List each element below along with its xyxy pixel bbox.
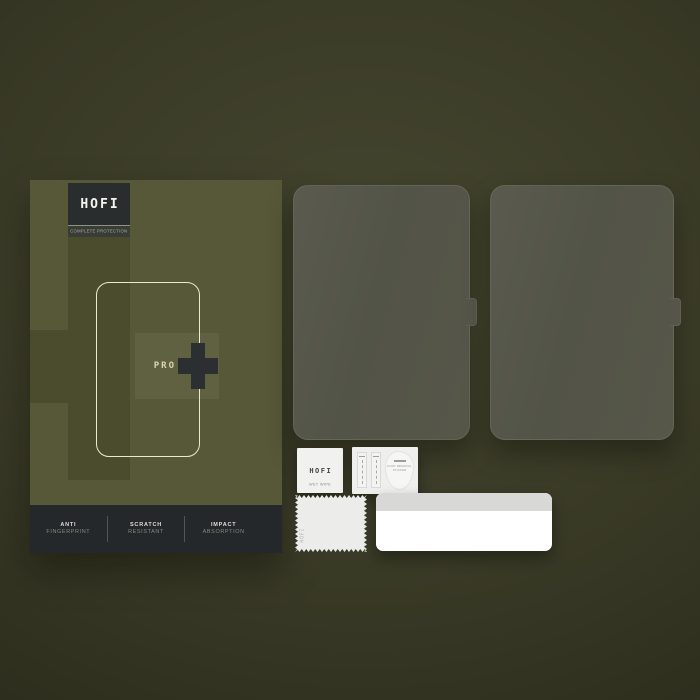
dust-removal-sticker: DUST REMOVAL STICKER <box>385 451 414 490</box>
alignment-frame-liner <box>376 493 552 511</box>
feature-bar: ANTI FINGERPRINT SCRATCH RESISTANT IMPAC… <box>30 505 282 553</box>
brand-tagline: COMPLETE PROTECTION <box>70 229 127 233</box>
cloth-brand: HOFI <box>300 527 306 542</box>
dust-sticker-strip <box>357 452 367 488</box>
brand-name: HOFI <box>80 197 119 212</box>
product-box: HOFI COMPLETE PROTECTION PRO ANTI FINGER… <box>30 180 282 553</box>
dust-sticker-packet: DUST REMOVAL STICKER <box>352 447 418 494</box>
camera-tab <box>670 298 681 326</box>
microfiber-cloth: HOFI <box>295 495 367 552</box>
wet-wipe-packet: HOFI WET WIPE <box>297 448 343 493</box>
wet-wipe-brand: HOFI <box>309 467 332 475</box>
feature-scratch-resistant: SCRATCH RESISTANT <box>108 522 185 536</box>
alignment-frame-sticker <box>376 493 552 551</box>
dust-sticker-strip <box>371 452 381 488</box>
model-label: PRO <box>146 360 176 373</box>
product-photo: HOFI COMPLETE PROTECTION PRO ANTI FINGER… <box>0 0 700 700</box>
brand-tagline-strip: COMPLETE PROTECTION <box>68 225 130 237</box>
feature-impact-absorption: IMPACT ABSORPTION <box>185 522 262 536</box>
screen-protector-right <box>490 185 674 440</box>
feature-anti-fingerprint: ANTI FINGERPRINT <box>30 522 107 536</box>
brand-logo: HOFI COMPLETE PROTECTION <box>68 183 130 237</box>
wet-wipe-label: WET WIPE <box>305 483 335 487</box>
camera-tab <box>466 298 477 326</box>
screen-protector-left <box>293 185 470 440</box>
brand-logo-plate: HOFI <box>68 183 130 225</box>
plus-symbol-horizontal-bar <box>178 358 218 374</box>
